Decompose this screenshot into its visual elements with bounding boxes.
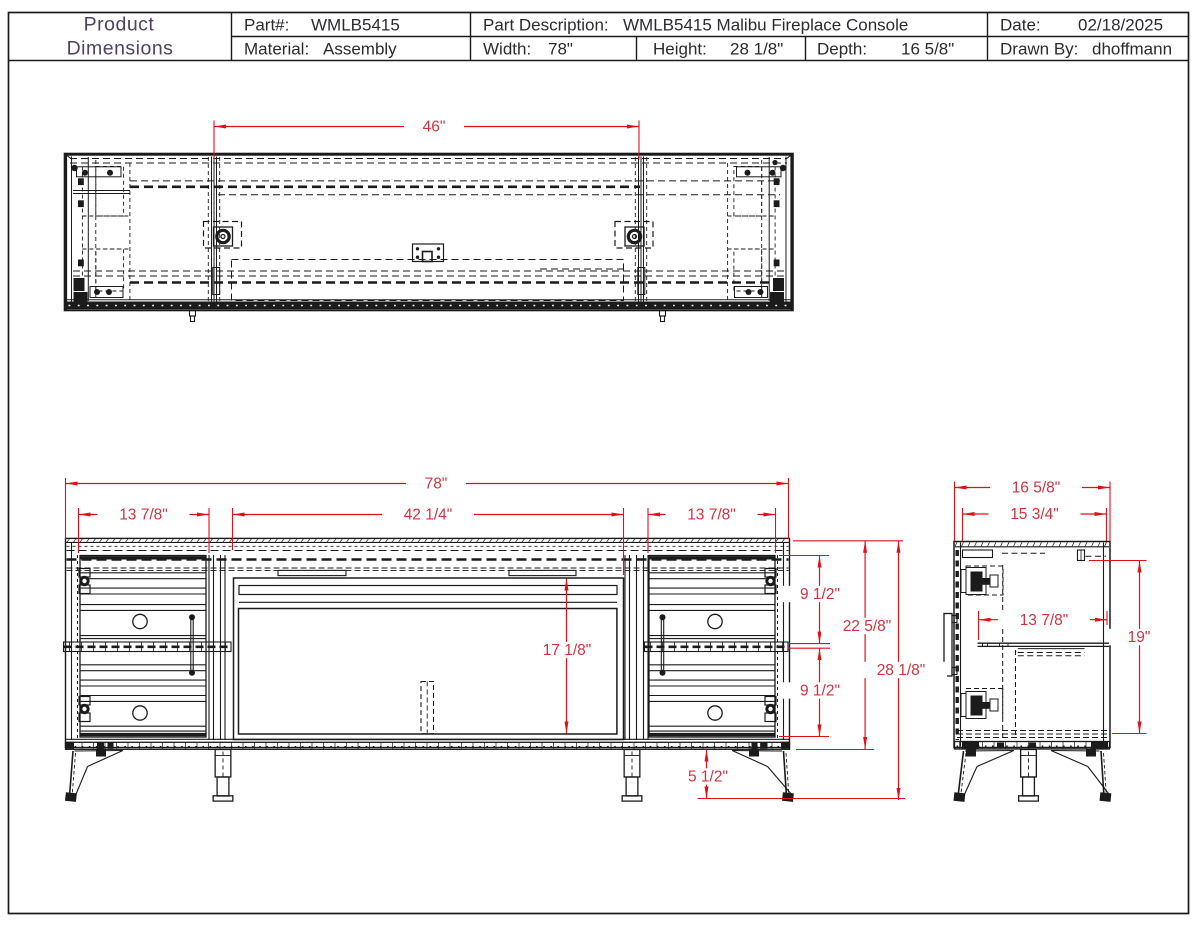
- svg-text:Width:: Width:: [483, 40, 531, 59]
- svg-text:5 1/2": 5 1/2": [688, 769, 728, 786]
- svg-text:16 5/8": 16 5/8": [1012, 480, 1061, 497]
- svg-text:22 5/8": 22 5/8": [843, 618, 892, 635]
- svg-text:28 1/8": 28 1/8": [730, 40, 783, 59]
- svg-text:16 5/8": 16 5/8": [901, 40, 954, 59]
- svg-text:Depth:: Depth:: [817, 40, 867, 59]
- svg-text:Part#:: Part#:: [244, 16, 289, 35]
- svg-text:WMLB5415: WMLB5415: [311, 16, 400, 35]
- svg-text:dhoffmann: dhoffmann: [1092, 40, 1172, 59]
- svg-text:Height:: Height:: [653, 40, 707, 59]
- svg-text:78": 78": [425, 476, 448, 493]
- svg-text:13 7/8": 13 7/8": [119, 507, 168, 524]
- svg-text:46": 46": [423, 119, 446, 136]
- svg-text:15 3/4": 15 3/4": [1010, 506, 1059, 523]
- svg-text:17 1/8": 17 1/8": [543, 642, 592, 659]
- svg-text:13 7/8": 13 7/8": [1020, 612, 1069, 629]
- svg-text:19": 19": [1128, 629, 1151, 646]
- svg-text:13 7/8": 13 7/8": [687, 507, 736, 524]
- svg-text:Material:: Material:: [244, 40, 309, 59]
- svg-text:9 1/2": 9 1/2": [800, 683, 840, 700]
- svg-text:42 1/4": 42 1/4": [404, 507, 453, 524]
- svg-text:Dimensions: Dimensions: [67, 38, 174, 60]
- svg-text:9 1/2": 9 1/2": [800, 586, 840, 603]
- svg-text:28 1/8": 28 1/8": [877, 662, 926, 679]
- svg-text:Date:: Date:: [1000, 16, 1041, 35]
- svg-text:02/18/2025: 02/18/2025: [1078, 16, 1163, 35]
- svg-text:Product: Product: [84, 14, 155, 36]
- svg-text:Assembly: Assembly: [323, 40, 397, 59]
- svg-text:78": 78": [548, 40, 573, 59]
- svg-text:Part Description:: Part Description:: [483, 16, 609, 35]
- svg-text:WMLB5415 Malibu Fireplace Cons: WMLB5415 Malibu Fireplace Console: [623, 16, 908, 35]
- svg-text:Drawn By:: Drawn By:: [1000, 40, 1078, 59]
